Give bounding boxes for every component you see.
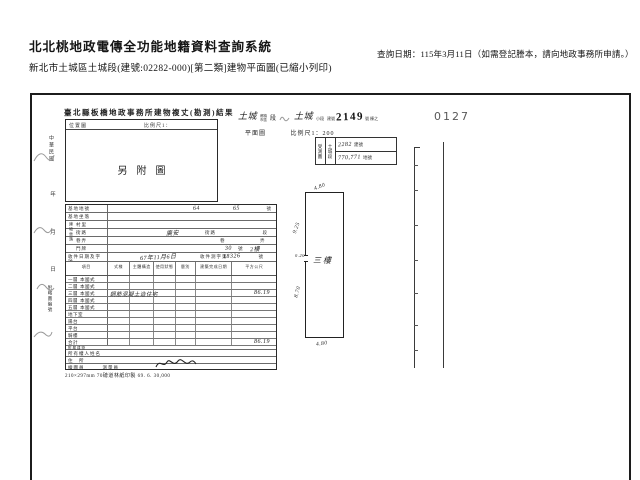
small-section-label: 小段 xyxy=(316,116,324,122)
system-title: 北北桃地政電傳全功能地籍資料查詢系統 xyxy=(29,36,272,55)
floor-label: 二層 xyxy=(68,284,78,289)
printed-suffix: 號 xyxy=(267,206,273,212)
floor-label: 三層 xyxy=(68,291,78,296)
form-row: 收件日期及字號 67年11月6日 收件測字第 18326 號 xyxy=(66,253,276,262)
row-label: 住 所 xyxy=(68,358,85,363)
floor-row: 五層 本國式 xyxy=(66,304,276,311)
building-no-suffix: 號 棟之 xyxy=(365,116,378,122)
row-label: 門牌 xyxy=(66,245,108,252)
pencil-mark xyxy=(35,279,57,297)
printed-suffix: 弄 xyxy=(260,238,266,244)
floor-row: 四層 本國式 xyxy=(66,297,276,304)
dimension-left-mid: 0.20 xyxy=(295,253,305,258)
row-label: 附屬建物 xyxy=(68,346,86,349)
plan-scale-line: 平面圖 比例尺1：200 xyxy=(245,128,335,137)
floor-row: 陽台 xyxy=(66,318,276,325)
floor-label: 合計 xyxy=(68,340,78,345)
handwritten-area: 86.19 xyxy=(254,339,270,345)
floor-label: 五層 xyxy=(68,305,78,310)
location-map-placeholder: 另附圖 xyxy=(66,162,217,177)
handwritten-value: 67年11月6日 xyxy=(140,251,177,262)
location-map-box: 位置圖 比例尺1： 另附圖 xyxy=(65,119,218,202)
township-value: 土城 xyxy=(238,109,257,122)
site-rows: 基地地號 64 65 號 基地坐落 xyxy=(66,205,276,262)
floor-row: 平台 xyxy=(66,325,276,332)
handwritten-entry: 鋼筋混凝土造住宅 xyxy=(110,290,158,298)
form-row: 巷弄 巷 弄 xyxy=(66,237,276,245)
ref-stamp-land-row: 770,771地號 xyxy=(336,151,396,164)
floor-style: 本國式 xyxy=(80,291,95,296)
survey-form-table: 基地地號 64 65 號 基地坐落 xyxy=(65,204,277,370)
margin-year-label: 年 xyxy=(48,191,56,197)
survey-line-cap xyxy=(414,147,420,148)
floor-name-label: 三樓 xyxy=(313,255,333,266)
row-label: 收件日期及字號 xyxy=(66,253,108,261)
form-row: 街路 廣安 街路 段 xyxy=(66,229,276,237)
form-row: 基地坐落 xyxy=(66,213,276,221)
ref-stamp-col1: 受測圖 xyxy=(316,138,326,164)
handwritten-value: 廣安 xyxy=(166,227,179,237)
table-column-headers: 項目 式樣 主體構造 使用狀態 層別 建築完成日期 平方公尺 xyxy=(66,262,276,276)
surveyor-signature xyxy=(154,357,198,371)
survey-tick xyxy=(414,165,418,166)
township-label: 鄉鎮 市區 xyxy=(260,114,267,122)
floor-row: 二層 本國式 xyxy=(66,283,276,290)
floor-row: 合計 86.19 xyxy=(66,339,276,346)
survey-line-right xyxy=(443,142,444,368)
handwritten-area: 86.19 xyxy=(254,290,270,296)
floor-style: 本國式 xyxy=(80,305,95,310)
reference-stamp-table: 受測圖 土城段 2282建號 770,771地號 xyxy=(315,137,397,165)
floor-row: 騎樓 xyxy=(66,332,276,339)
screenshot-root: 北北桃地政電傳全功能地籍資料查詢系統 查詢日期：115年3月11日（如需登記謄本… xyxy=(0,0,640,480)
dimension-left-upper: 9.25 xyxy=(292,222,302,235)
building-location-group-label: 建物坐落 xyxy=(68,222,74,242)
dimension-top: 4.80 xyxy=(313,182,326,192)
floor-row: 一層 本國式 xyxy=(66,276,276,283)
handwritten-value-2: 18326 xyxy=(223,253,241,260)
printed-text: 巷 xyxy=(220,238,226,244)
survey-tick xyxy=(414,325,418,326)
location-box-header: 位置圖 比例尺1： xyxy=(66,120,217,130)
form-row: 所有權人姓名 xyxy=(66,350,276,357)
form-row: 基地地號 64 65 號 xyxy=(66,205,276,213)
paper-spec-note: 210×297mm 70磅道林紙印製 69. 6. 30,000 xyxy=(65,372,170,379)
plan-label: 平面圖 xyxy=(245,131,266,137)
survey-tick xyxy=(414,225,418,226)
printed-text: 號 xyxy=(238,246,244,252)
floor-label: 地下室 xyxy=(68,312,83,317)
floor-label: 騎樓 xyxy=(68,333,78,338)
row-label: 基地坐落 xyxy=(66,213,108,220)
dimension-left-lower: 8.70 xyxy=(293,286,302,299)
location-box-label: 位置圖 xyxy=(69,122,87,129)
survey-tick xyxy=(414,190,418,191)
handwritten-value: 30 xyxy=(225,245,232,251)
row-label: 所有權人姓名 xyxy=(68,351,101,356)
row-label-extra: 測量員 xyxy=(103,365,120,371)
floor-label: 四層 xyxy=(68,298,78,303)
margin-day-label: 日 xyxy=(48,266,56,272)
floor-row: 地下室 xyxy=(66,311,276,318)
handwritten-value-2: 65 xyxy=(233,205,240,211)
handwriting-scribble xyxy=(279,114,291,122)
floor-style: 本國式 xyxy=(80,298,95,303)
pencil-mark xyxy=(32,147,56,167)
section-label: 段 xyxy=(270,113,276,122)
building-no-stamp: 2149 xyxy=(336,111,364,124)
printed-text: 街路 xyxy=(205,230,216,236)
handwritten-value: 64 xyxy=(193,205,200,211)
floor-label: 平台 xyxy=(68,326,78,331)
scanned-page: 臺北縣板橋地政事務所建物複丈(勘測)結果 位置圖 比例尺1： 另附圖 土城 鄉鎮… xyxy=(30,93,631,480)
pencil-mark xyxy=(32,326,54,342)
section-header-line: 土城 鄉鎮 市區 段 土城 小段 建號 2149 號 棟之 xyxy=(238,109,378,122)
floor-rows: 一層 本國式 二層 本國式 xyxy=(66,276,276,346)
floor-row: 三層 本國式 鋼筋混凝土造住宅 86.19 xyxy=(66,290,276,297)
form-title: 臺北縣板橋地政事務所建物複丈(勘測)結果 xyxy=(64,107,234,118)
floor-style: 本國式 xyxy=(80,284,95,289)
building-no-label: 建號 xyxy=(327,116,335,122)
handwritten-value-2: 2樓 xyxy=(250,243,260,253)
survey-tick xyxy=(414,260,418,261)
printed-suffix: 號 xyxy=(259,254,265,260)
row-label: 基地地號 xyxy=(66,205,108,212)
ref-stamp-building-row: 2282建號 xyxy=(336,138,396,151)
survey-tick xyxy=(414,350,418,351)
query-date-note: 查詢日期：115年3月11日（如需登記謄本，請向地政事務所申請。） xyxy=(377,48,634,60)
floor-style: 本國式 xyxy=(80,277,95,282)
ref-stamp-col2: 土城段 xyxy=(326,138,336,164)
small-section-value: 土城 xyxy=(294,109,313,122)
pencil-mark xyxy=(32,221,54,239)
floor-label: 陽台 xyxy=(68,319,78,324)
floor-label: 一層 xyxy=(68,277,78,282)
printed-suffix: 段 xyxy=(263,230,269,236)
row-label: 繪圖員 xyxy=(68,365,85,371)
location-scale-label: 比例尺1： xyxy=(144,122,172,129)
survey-tick xyxy=(414,293,418,294)
document-subtitle: 新北市土城區土城段(建號:02282-000)[第二類]建物平面圖(已縮小列印) xyxy=(29,60,332,74)
floor-plan-outline: 三樓 4.80 4.80 9.25 8.70 0.20 xyxy=(305,192,344,338)
page-number-stamp: 0127 xyxy=(434,110,470,123)
survey-line-left xyxy=(414,147,415,368)
dimension-bottom: 4.80 xyxy=(316,340,328,348)
